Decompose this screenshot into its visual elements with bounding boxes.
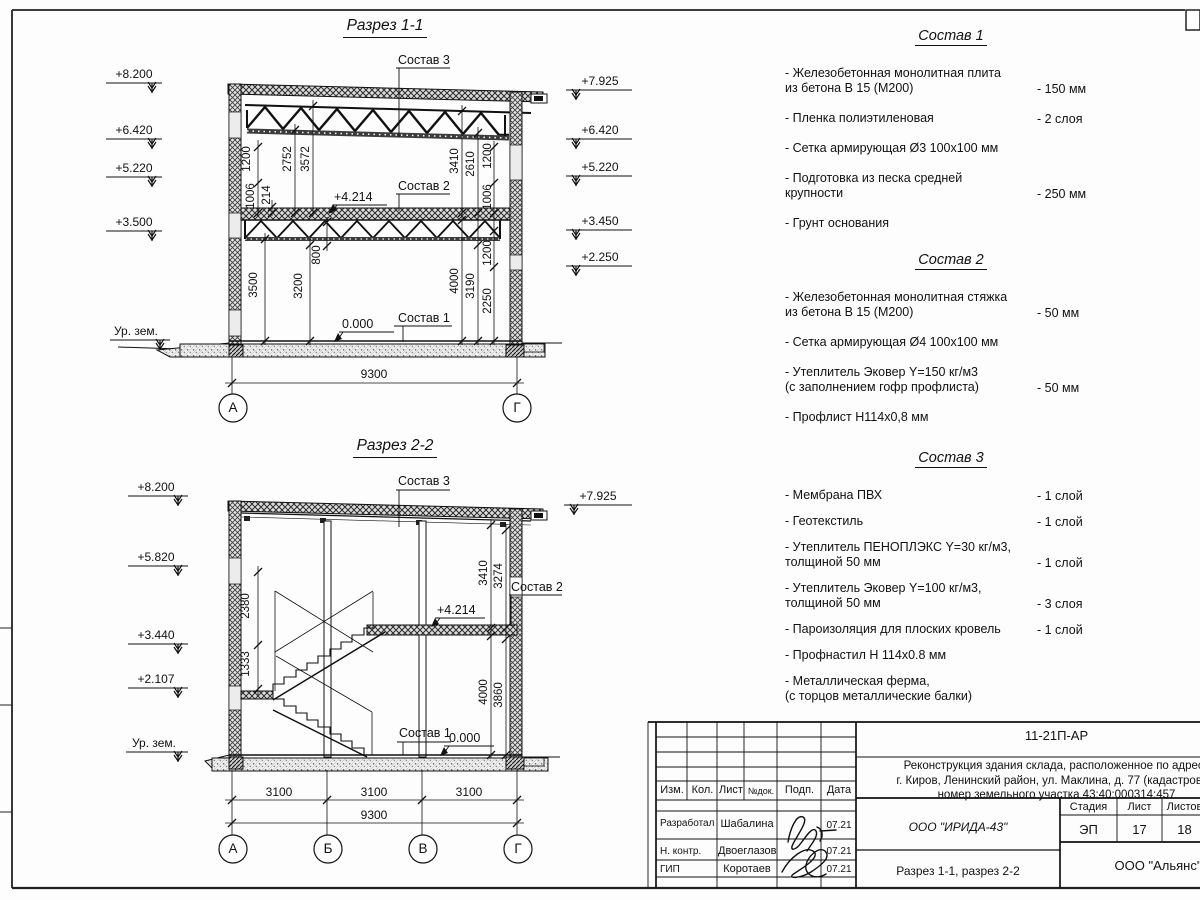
axis-label: Г <box>507 400 527 415</box>
list-item: - Утеплитель Эковер Y=150 кг/м3 (с запол… <box>785 365 1117 395</box>
composition-list-1: Состав 1 - Железобетонная монолитная пли… <box>785 28 1117 246</box>
date-value: 07.21 <box>822 864 856 875</box>
axis-label: А <box>223 841 243 856</box>
list-title: Состав 3 <box>785 450 1117 468</box>
dim-label: 3190 <box>465 261 477 311</box>
list-item: - Сетка армирующая Ø4 100х100 мм <box>785 335 1117 350</box>
elevation-mark: +5.820 <box>128 550 184 564</box>
col-header-izm: Изм. <box>657 784 687 796</box>
dim-label: 3100 <box>249 785 309 799</box>
contractor-org: ООО "Альянс" <box>1060 858 1200 873</box>
section-1-title: Разрез 1-1 <box>330 17 440 38</box>
list-item: - Грунт основания <box>785 216 1117 231</box>
role-label: Разработал <box>660 818 714 829</box>
axis-label: Г <box>508 841 528 856</box>
elevation-mark: +3.440 <box>128 628 184 642</box>
dim-label: 2250 <box>482 276 494 326</box>
dim-label: 4000 <box>449 256 461 306</box>
col-header-list: Лист <box>718 784 744 796</box>
elevation-mark: +7.925 <box>572 74 628 88</box>
list-item: - Сетка армирующая Ø3 100х100 мм <box>785 141 1117 156</box>
dim-label: 3100 <box>439 785 499 799</box>
level-label: 0.000 <box>342 317 373 331</box>
note-sostav3: Состав 3 <box>398 474 450 488</box>
col-header-kol: Кол. <box>688 784 717 796</box>
list-item: - Железобетонная монолитная стяжка из бе… <box>785 290 1117 320</box>
person-name: Двоеглазов <box>718 845 776 857</box>
note-sostav2: Состав 2 <box>511 580 563 594</box>
dim-label: 3572 <box>300 134 312 184</box>
col-header-podp: Подп. <box>778 784 821 796</box>
dim-label: 9300 <box>344 808 404 822</box>
section-2-title: Разрез 2-2 <box>340 437 450 458</box>
list-item: - Утеплитель Эковер Y=100 кг/м3, толщино… <box>785 581 1117 611</box>
stage-label: Стадия <box>1060 801 1117 813</box>
elevation-mark: +6.420 <box>106 123 162 137</box>
dim-label: 3410 <box>449 136 461 186</box>
axis-label: В <box>413 841 433 856</box>
dim-label: 3274 <box>493 551 505 601</box>
dim-label: 1333 <box>240 639 252 689</box>
dim-label: 2380 <box>240 581 252 631</box>
dim-label: 800 <box>311 230 323 280</box>
dim-label: 3860 <box>493 670 505 720</box>
elevation-mark: +2.107 <box>128 672 184 686</box>
note-sostav3: Состав 3 <box>398 53 450 67</box>
list-title: Состав 2 <box>785 252 1117 270</box>
level-label: 0.000 <box>449 731 480 745</box>
list-title: Состав 1 <box>785 28 1117 46</box>
document-code: 11-21П-АР <box>858 728 1200 743</box>
composition-list-3: Состав 3 - Мембрана ПВХ- 1 слой - Геотек… <box>785 450 1117 715</box>
level-label: +4.214 <box>334 190 373 204</box>
note-sostav1: Состав 1 <box>398 311 450 325</box>
design-org: ООО "ИРИДА-43" <box>858 820 1058 834</box>
note-sostav2: Состав 2 <box>398 179 450 193</box>
dim-label: 214 <box>261 170 273 220</box>
list-item: - Металлическая ферма, (с торцов металли… <box>785 674 1117 704</box>
dim-label: 1006 <box>245 171 257 221</box>
dim-label: 3410 <box>478 548 490 598</box>
person-name: Шабалина <box>718 818 776 830</box>
elevation-mark: +3.450 <box>572 214 628 228</box>
axis-label: А <box>223 400 243 415</box>
drawing-sheet: Разрез 1-1 Разрез 2-2 +8.200 +6.420 +5.2… <box>0 0 1200 900</box>
dim-label: 1200 <box>482 228 494 278</box>
sheet-value: 17 <box>1117 822 1162 837</box>
col-header-data: Дата <box>822 784 856 796</box>
elevation-mark: +8.200 <box>106 67 162 81</box>
date-value: 07.21 <box>822 820 856 831</box>
list-item: - Профлист Н114х0,8 мм <box>785 410 1117 425</box>
elevation-mark: +7.925 <box>570 489 626 503</box>
list-item: - Мембрана ПВХ- 1 слой <box>785 488 1117 503</box>
dim-label: 4000 <box>478 667 490 717</box>
sheets-label: Листов <box>1162 801 1200 813</box>
list-item: - Железобетонная монолитная плита из бет… <box>785 66 1117 96</box>
elevation-mark: +3.500 <box>106 215 162 229</box>
col-header-ndok: №док. <box>745 786 777 796</box>
sheets-value: 18 <box>1162 822 1200 837</box>
note-sostav1: Состав 1 <box>399 726 451 740</box>
date-value: 07.21 <box>822 846 856 857</box>
ground-level-label: Ур. зем. <box>108 324 164 338</box>
composition-list-2: Состав 2 - Железобетонная монолитная стя… <box>785 252 1117 440</box>
dim-label: 1006 <box>482 172 494 222</box>
dim-label: 3500 <box>248 260 260 310</box>
axis-label: Б <box>318 841 338 856</box>
list-item: - Геотекстиль- 1 слой <box>785 514 1117 529</box>
elevation-mark: +8.200 <box>128 480 184 494</box>
list-item: - Подготовка из песка средней крупности-… <box>785 171 1117 201</box>
level-label: +4.214 <box>437 603 476 617</box>
ground-level-label: Ур. зем. <box>126 736 182 750</box>
elevation-mark: +6.420 <box>572 123 628 137</box>
dim-label: 3200 <box>293 261 305 311</box>
dim-label: 3100 <box>344 785 404 799</box>
dim-label: 2610 <box>465 139 477 189</box>
list-item: - Утеплитель ПЕНОПЛЭКС Y=30 кг/м3, толщи… <box>785 540 1117 570</box>
list-item: - Пленка полиэтиленовая- 2 слоя <box>785 111 1117 126</box>
project-description: Реконструкция здания склада, расположенн… <box>858 759 1200 803</box>
dim-label: 2752 <box>282 134 294 184</box>
list-item: - Пароизоляция для плоских кровель- 1 сл… <box>785 622 1117 637</box>
stage-value: ЭП <box>1060 822 1117 837</box>
dim-label: 9300 <box>344 367 404 381</box>
elevation-mark: +2.250 <box>572 250 628 264</box>
person-name: Коротаев <box>718 863 776 875</box>
list-item: - Профнастил Н 114х0.8 мм <box>785 648 1117 663</box>
sheet-title: Разрез 1-1, разрез 2-2 <box>858 864 1058 878</box>
sheet-label: Лист <box>1117 801 1162 813</box>
role-label: ГИП <box>660 864 680 875</box>
elevation-mark: +5.220 <box>572 160 628 174</box>
role-label: Н. контр. <box>660 846 701 857</box>
elevation-mark: +5.220 <box>106 161 162 175</box>
